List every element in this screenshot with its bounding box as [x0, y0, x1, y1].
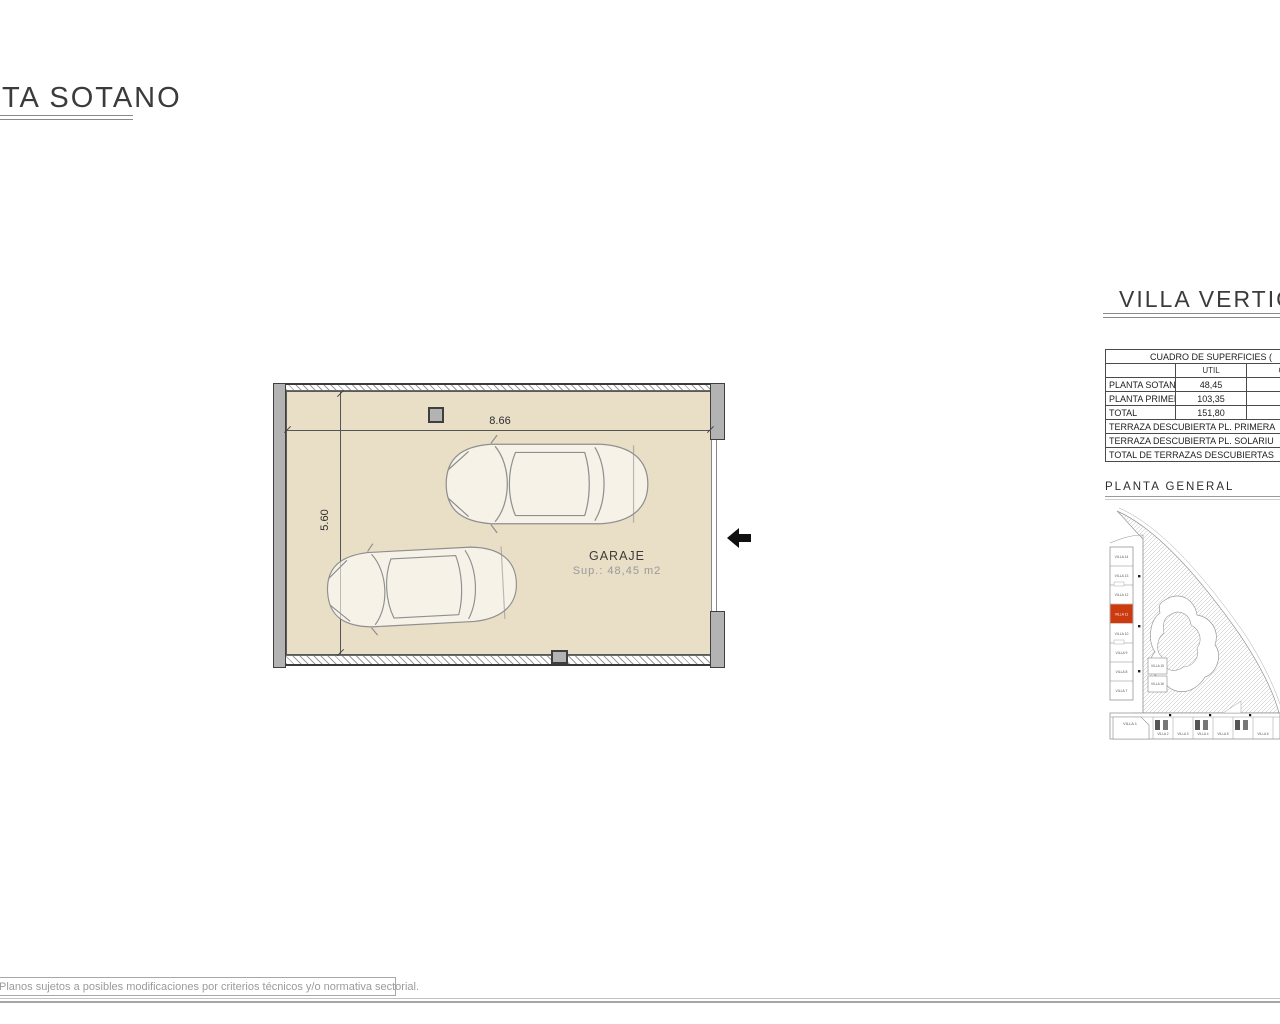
villa-label: VILLA 14: [1115, 555, 1129, 559]
footer-rule: [0, 1001, 1280, 1003]
table-row: TOTAL DE TERRAZAS DESCUBIERTAS: [1106, 448, 1280, 462]
project-title: VILLA VERTICA: [1119, 286, 1280, 313]
row-value: 48,45: [1176, 378, 1246, 392]
villa-label: VILLA 7: [1116, 689, 1128, 693]
row-label: TERRAZA DESCUBIERTA PL. PRIMERA: [1106, 420, 1280, 434]
car-icon: [1203, 720, 1208, 730]
header-util: UTIL: [1176, 364, 1246, 378]
table-row: TERRAZA DESCUBIERTA PL. SOLARIU: [1106, 434, 1280, 448]
villa-label: VILLA 3: [1177, 732, 1188, 736]
villa-label: VILLA 5: [1217, 732, 1228, 736]
car-top-view-2: [313, 531, 528, 644]
dimension-height-label: 5.60: [305, 500, 345, 540]
footer-rule: [0, 998, 1280, 999]
villa-label: VILLA 16: [1151, 682, 1164, 686]
surfaces-table-header-row: UTIL C: [1106, 364, 1280, 378]
surfaces-table: CUADRO DE SUPERFICIES ( UTIL C PLANTA SO…: [1105, 349, 1280, 420]
room-area: Sup.: 48,45 m2: [557, 565, 677, 577]
surfaces-table-title-row: CUADRO DE SUPERFICIES (: [1106, 350, 1280, 364]
car-icon: [1155, 720, 1160, 730]
pillar: [551, 650, 568, 664]
row-cut-cell: [1246, 392, 1280, 406]
row-label: TOTAL: [1106, 406, 1176, 420]
villa-label: VILLA 9: [1116, 651, 1128, 655]
title-underline: [0, 115, 133, 120]
table-row: PLANTA PRIMERA 103,35: [1106, 392, 1280, 406]
dimension-width-label: 8.66: [470, 415, 530, 427]
road-dot: [1169, 714, 1171, 716]
garage-floor-plan: 8.66 5.60: [273, 383, 725, 668]
wall-bottom: [286, 655, 725, 666]
table-row: TOTAL 151,80: [1106, 406, 1280, 420]
surfaces-table-title: CUADRO DE SUPERFICIES (: [1106, 350, 1280, 364]
road-dot: [1138, 575, 1140, 577]
villa-label: VILLA 12: [1115, 593, 1129, 597]
villa-label: VILLA 2: [1157, 732, 1168, 736]
road-dot: [1138, 670, 1140, 672]
site-plan-title-underline: [1105, 496, 1280, 500]
site-plan: VILLA 14 VILLA 13 VILLA 12 VILLA 11 VILL…: [1105, 505, 1280, 757]
villa-label-highlighted: VILLA 11: [1115, 613, 1129, 617]
stair-box: [1114, 640, 1124, 644]
table-row: PLANTA SOTANO 48,45: [1106, 378, 1280, 392]
villa-label: VILLA 13: [1115, 574, 1129, 578]
header-cut: C: [1246, 364, 1280, 378]
row-value: 103,35: [1176, 392, 1246, 406]
car-icon: [1243, 720, 1248, 730]
car-icon: [1235, 720, 1240, 730]
disclaimer-box: Planos sujetos a posibles modificaciones…: [0, 977, 396, 996]
road-dot: [1138, 625, 1140, 627]
room-label-block: GARAJE Sup.: 48,45 m2: [557, 549, 677, 577]
car-icon: [1195, 720, 1200, 730]
row-cut-cell: [1246, 378, 1280, 392]
terraces-table: TERRAZA DESCUBIERTA PL. PRIMERA TERRAZA …: [1105, 419, 1280, 462]
row-value: 151,80: [1176, 406, 1246, 420]
entry-arrow-icon: [727, 527, 751, 549]
villa-label: VILLA 6: [1257, 732, 1268, 736]
wall-right-bottom: [710, 611, 725, 668]
room-name: GARAJE: [557, 549, 677, 563]
wall-top: [286, 383, 725, 391]
wall-right-top: [710, 383, 725, 440]
pillar: [428, 407, 444, 423]
page-title: TA SOTANO: [2, 82, 182, 115]
row-label: TOTAL DE TERRAZAS DESCUBIERTAS: [1106, 448, 1280, 462]
left-villa-strip: [1110, 547, 1133, 700]
table-row: TERRAZA DESCUBIERTA PL. PRIMERA: [1106, 420, 1280, 434]
villa-label: VILLA 10: [1115, 632, 1129, 636]
site-plan-title: PLANTA GENERAL: [1105, 481, 1234, 493]
car-icon: [1163, 720, 1168, 730]
row-label: TERRAZA DESCUBIERTA PL. SOLARIU: [1106, 434, 1280, 448]
header-empty: [1106, 364, 1176, 378]
row-label: PLANTA SOTANO: [1106, 378, 1176, 392]
villa-label: VILLA 4: [1197, 732, 1208, 736]
project-title-underline: [1103, 313, 1280, 318]
villa-label: VILLA 15: [1151, 664, 1164, 668]
row-cut-cell: [1246, 406, 1280, 420]
villa-label: VILLA 1: [1123, 721, 1138, 726]
garage-door-opening: [711, 440, 717, 611]
drawing-sheet: TA SOTANO 8.66 5.60: [0, 0, 1280, 1024]
row-label: PLANTA PRIMERA: [1106, 392, 1176, 406]
stair-box: [1114, 582, 1124, 586]
road-dot: [1209, 714, 1211, 716]
villa-label: VILLA 8: [1116, 670, 1128, 674]
wall-left: [273, 383, 286, 668]
car-top-view-1: [434, 430, 658, 538]
road-dot: [1249, 714, 1251, 716]
